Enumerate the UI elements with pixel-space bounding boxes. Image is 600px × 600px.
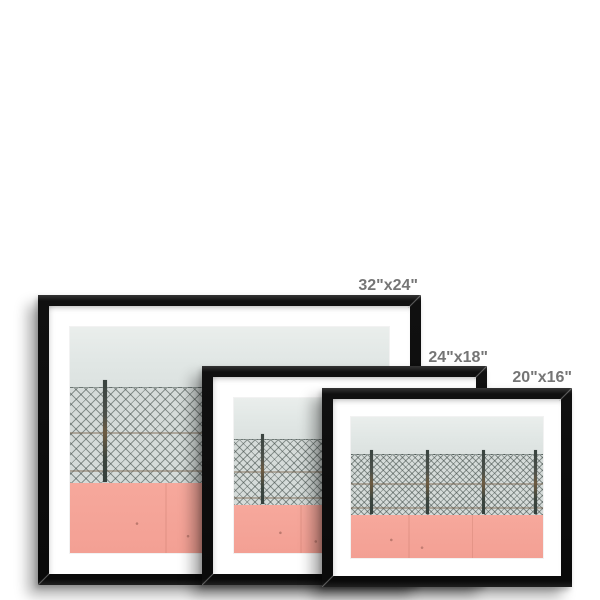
size-label-24x18: 24"x18" [428, 349, 488, 367]
photo-wall-top [351, 417, 543, 454]
fence-wire [351, 483, 543, 485]
picture-frame-20x16 [322, 388, 572, 587]
fence-wire [351, 507, 543, 509]
fence-post [534, 450, 537, 513]
frame-mat [333, 399, 561, 576]
fence-post [426, 450, 429, 513]
frame-size-comparison-image: 32"x24" 24"x18" 20"x16" [0, 0, 600, 600]
fence-post [261, 434, 264, 504]
artwork-photo [351, 417, 543, 558]
fence-post [370, 450, 373, 513]
size-label-32x24: 32"x24" [358, 277, 418, 295]
photo-chainlink-fence [351, 454, 543, 514]
fence-post [482, 450, 485, 513]
photo-pink-wall [351, 515, 543, 558]
fence-post [103, 380, 107, 482]
size-label-20x16: 20"x16" [512, 369, 572, 387]
